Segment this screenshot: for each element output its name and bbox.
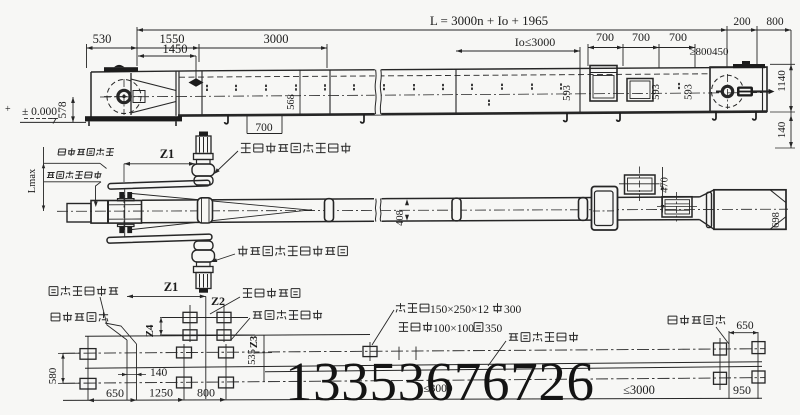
svg-text:950: 950 [733, 383, 751, 397]
svg-text:± 0.000: ± 0.000 [22, 106, 57, 118]
svg-text:530: 530 [93, 32, 112, 46]
svg-text:700: 700 [596, 30, 614, 44]
svg-text:Io≤3000: Io≤3000 [515, 35, 556, 49]
svg-text:3000: 3000 [264, 32, 289, 46]
svg-text:100×100: 100×100 [433, 323, 474, 335]
svg-text:470: 470 [660, 177, 671, 193]
svg-text:700: 700 [632, 30, 650, 44]
svg-text:1140: 1140 [776, 70, 788, 92]
svg-text:593: 593 [651, 84, 662, 100]
svg-text:800: 800 [197, 386, 215, 400]
svg-text:593: 593 [562, 85, 573, 101]
svg-text:535: 535 [247, 349, 258, 365]
svg-text:Z1: Z1 [160, 147, 175, 161]
svg-text:300: 300 [504, 304, 522, 316]
svg-text:580: 580 [47, 367, 59, 384]
svg-text:≤3000: ≤3000 [623, 383, 655, 397]
svg-text:L = 3000n + Io + 1965: L = 3000n + Io + 1965 [430, 13, 548, 28]
svg-text:800: 800 [766, 16, 784, 28]
svg-text:13353676726: 13353676726 [285, 351, 594, 412]
svg-text:650: 650 [106, 386, 124, 400]
svg-text:Z3: Z3 [249, 336, 260, 348]
svg-text:Z1: Z1 [164, 280, 179, 294]
svg-text:350: 350 [485, 323, 503, 335]
svg-text:578: 578 [57, 101, 69, 119]
svg-text:Lmax: Lmax [27, 168, 38, 193]
svg-text:700: 700 [669, 30, 687, 44]
svg-text:568: 568 [286, 94, 297, 110]
svg-text:≥800450: ≥800450 [689, 46, 729, 58]
svg-text:698: 698 [771, 212, 782, 228]
svg-text:593: 593 [684, 84, 695, 100]
svg-text:140: 140 [776, 121, 788, 138]
svg-text:200: 200 [733, 16, 751, 28]
svg-text:650: 650 [736, 320, 754, 332]
svg-text:Z2: Z2 [211, 294, 225, 308]
svg-text:140: 140 [150, 367, 168, 379]
svg-text:1450: 1450 [163, 42, 188, 56]
svg-text:408: 408 [395, 210, 406, 226]
svg-text:1250: 1250 [149, 386, 173, 400]
svg-text:700: 700 [255, 122, 273, 134]
svg-text:150×250×12: 150×250×12 [430, 304, 489, 316]
svg-text:+: + [5, 104, 11, 115]
